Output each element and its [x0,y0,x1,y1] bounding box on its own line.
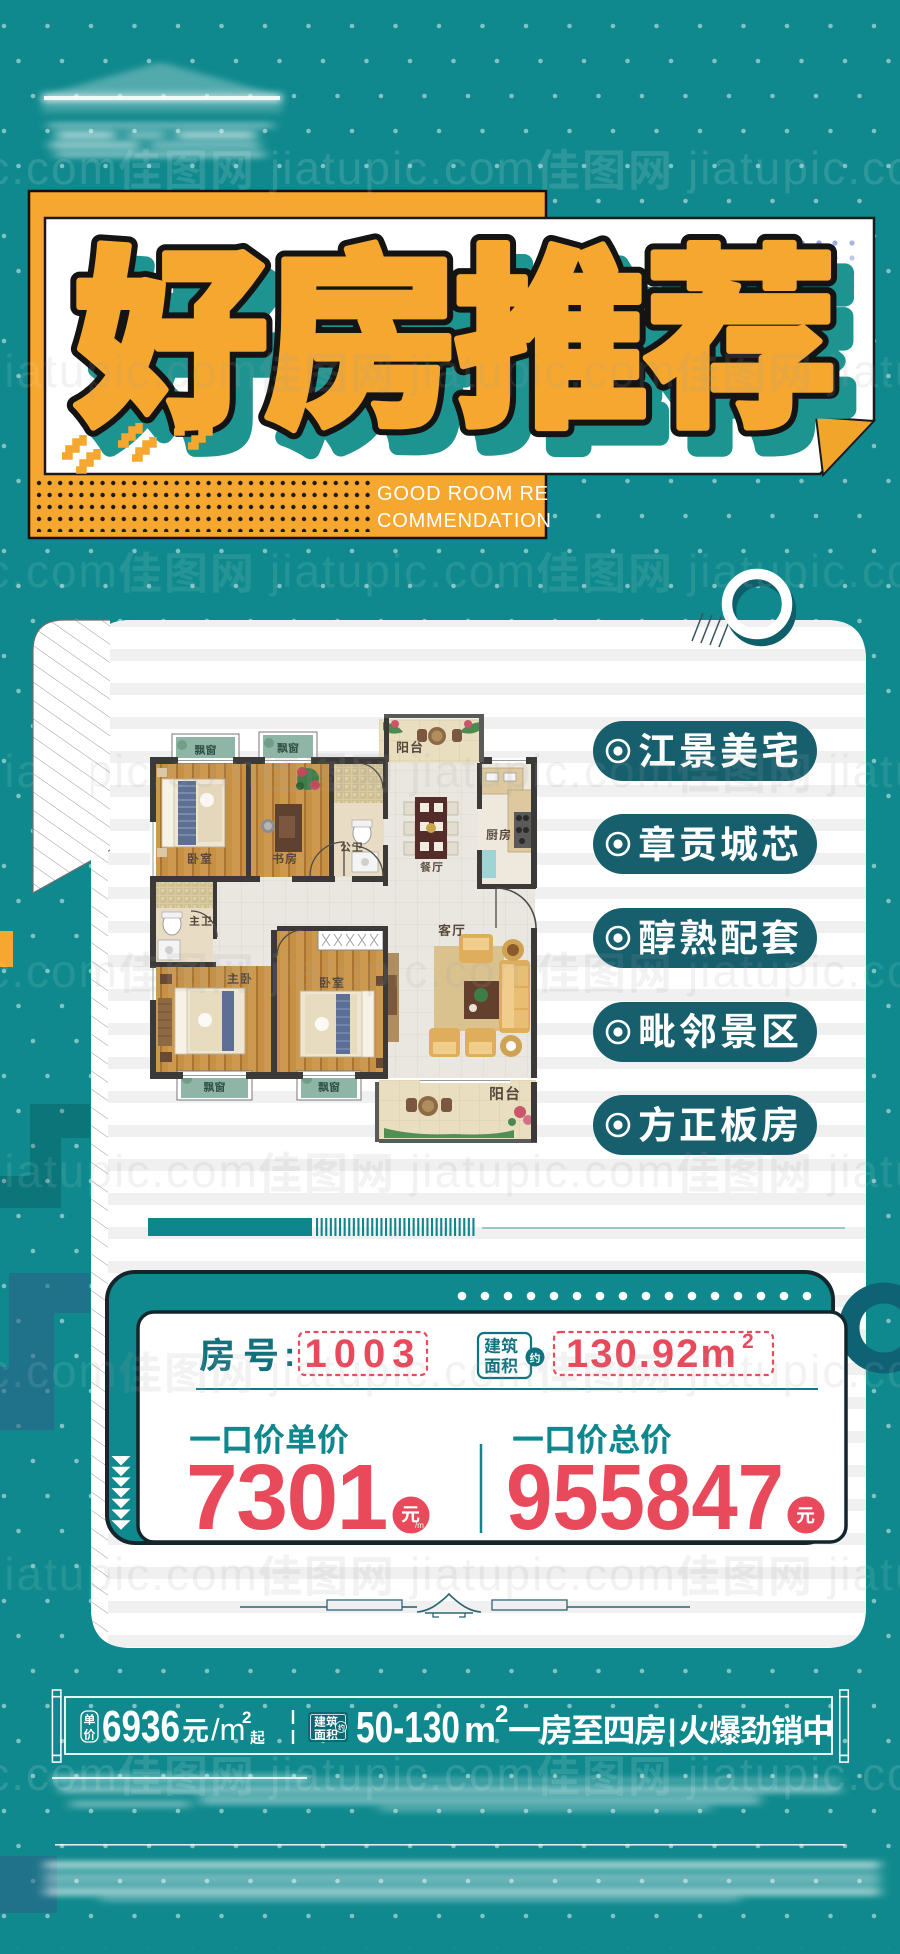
svg-text:6936: 6936 [102,1702,180,1751]
svg-text:7301: 7301 [186,1445,387,1549]
svg-text:|: | [668,1714,676,1747]
svg-text:/m: /m [211,1712,245,1747]
svg-text:50-130: 50-130 [356,1703,460,1752]
svg-text:m: m [464,1709,496,1750]
svg-text:GOOD ROOM RE: GOOD ROOM RE [377,483,549,505]
svg-text:2: 2 [242,1708,251,1727]
svg-text:2: 2 [495,1701,508,1728]
svg-text:955847: 955847 [506,1445,784,1549]
svg-text:COMMENDATION: COMMENDATION [377,510,552,532]
svg-text:/m: /m [415,1521,424,1530]
